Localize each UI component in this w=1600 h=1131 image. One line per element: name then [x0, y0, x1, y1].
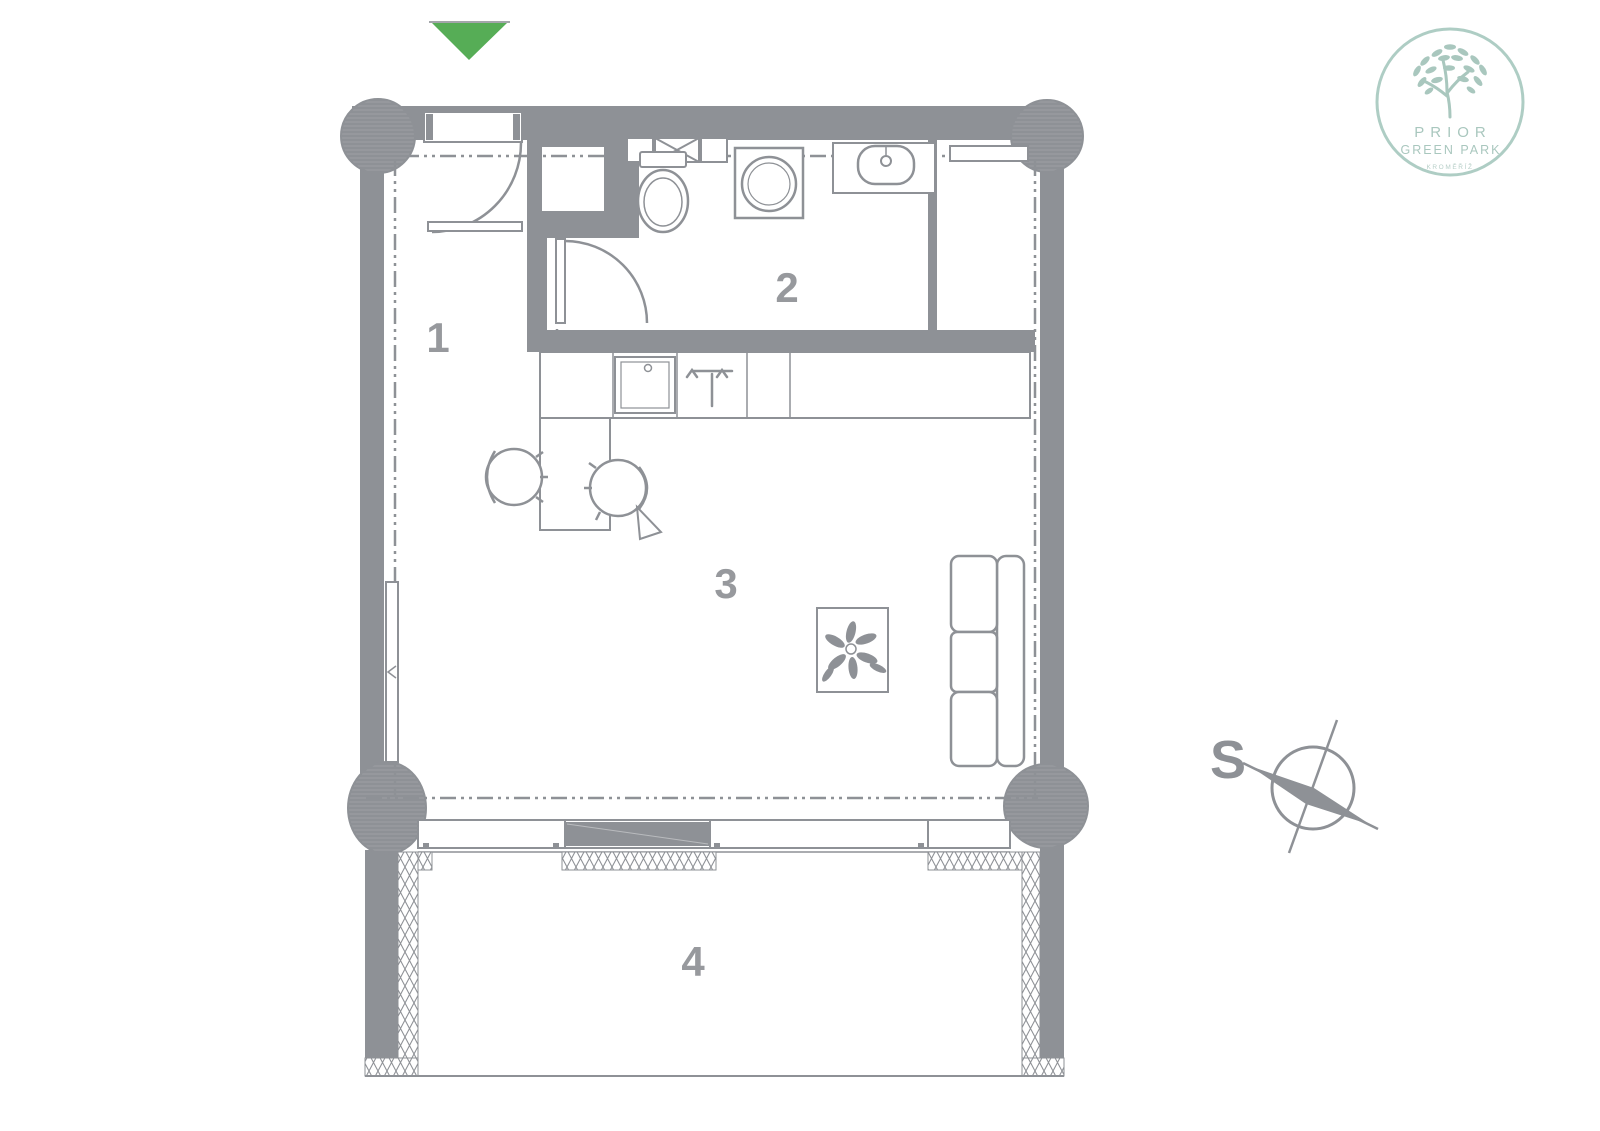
logo-title: PRIOR	[1414, 124, 1492, 141]
closet-area	[936, 140, 1028, 330]
room-label-1: 1	[426, 314, 449, 361]
entrance-door	[424, 112, 522, 232]
compass: S	[1210, 720, 1378, 853]
room-label-3: 3	[714, 560, 737, 607]
radiator-icon	[386, 582, 398, 762]
kitchen-counter	[540, 352, 1030, 418]
entrance-marker-icon	[429, 22, 510, 60]
toilet-icon	[638, 152, 688, 232]
logo: PRIOR GREEN PARK KROMĚŘÍŽ	[1377, 29, 1523, 175]
balcony	[365, 852, 1064, 1076]
floor-plan-drawing: 1 2 3 4 S	[0, 0, 1600, 1131]
coffee-table	[817, 608, 888, 692]
sofa	[951, 556, 1024, 766]
logo-subtitle: GREEN PARK	[1400, 143, 1501, 157]
column-top-left-icon	[341, 99, 415, 173]
chair-left-icon	[486, 449, 548, 505]
kitchen-sink-icon	[615, 357, 675, 413]
washing-machine-icon	[735, 148, 803, 218]
column-bottom-right-icon	[1004, 764, 1088, 848]
room-label-2: 2	[775, 264, 798, 311]
window-wall	[418, 820, 1010, 852]
column-bottom-left-icon	[348, 762, 426, 854]
floor-plan-page: 1 2 3 4 S	[0, 0, 1600, 1131]
projection-lines	[366, 156, 1038, 798]
sliding-door-panel	[565, 822, 710, 846]
bathroom-door	[556, 239, 647, 323]
north-label: S	[1210, 730, 1246, 790]
compass-rose-icon	[1243, 720, 1378, 853]
logo-caption: KROMĚŘÍŽ	[1426, 162, 1473, 171]
bathroom-sink-icon	[833, 143, 935, 193]
room-label-4: 4	[681, 938, 705, 985]
insulation-hatch	[398, 852, 1040, 870]
